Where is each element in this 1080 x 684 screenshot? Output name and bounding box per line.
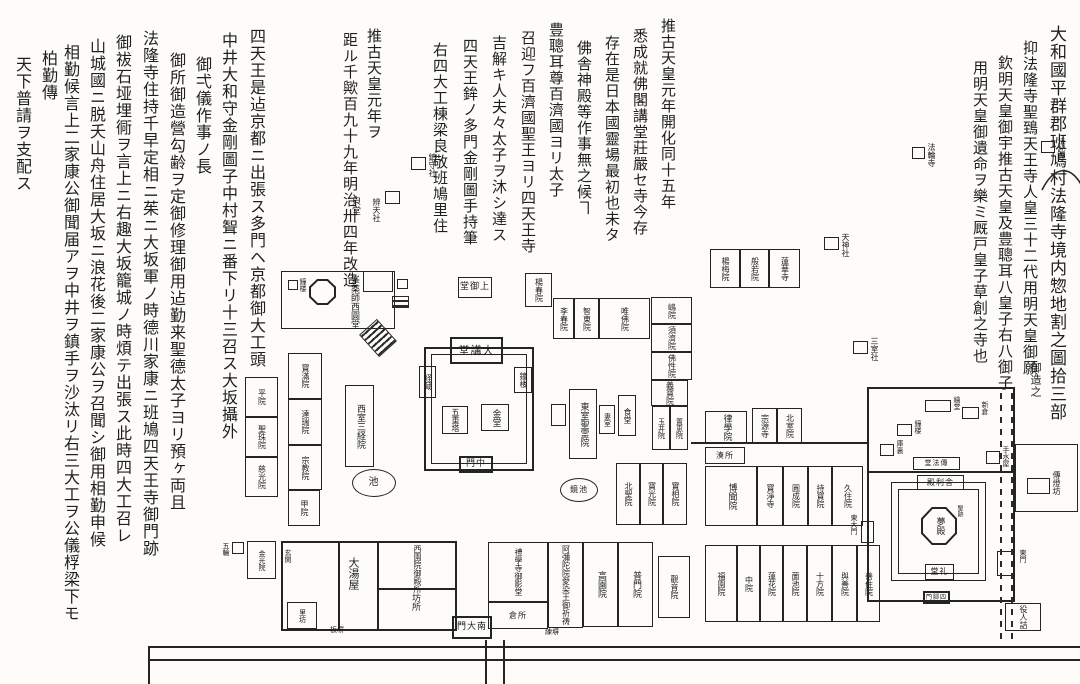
golden-hall: 金堂 (481, 404, 509, 431)
subtemple-label: 宗教院 (301, 456, 309, 480)
left-text-column-9: 天下普請ヲ支配ス (14, 56, 30, 192)
subtemple: 平院 (245, 377, 278, 417)
precinct-wall (691, 442, 868, 444)
pond: 池 (352, 469, 396, 497)
west-belfry-label: 鐘楼 (519, 372, 527, 388)
left-text-column-2: 御弌儀作事ノ長 (194, 56, 210, 175)
tsumamuro-label: 妻室 (604, 413, 611, 427)
left-text-column-4: 法隆寺住持千早定相ニ茱ニ大坂軍ノ時德川家康ニ班鳩四天王寺御門跡 (141, 30, 157, 557)
east-outbuilding (962, 407, 979, 419)
subtemple-label: 唯佛院 (621, 307, 629, 331)
golden-hall-label: 金堂 (491, 409, 500, 427)
middle-gate-label: 門中 (466, 460, 486, 469)
compound-wall (338, 541, 340, 631)
center-text-column-3: 佛舎神殿等作事無之候ヿ (576, 40, 591, 216)
wall-note: 板塀 (330, 627, 344, 634)
left-text-column-0: 四天王是迠京都ニ出張ス多門ヘ京都御大工頭 (248, 28, 264, 368)
right-text-column-2: 欽明天皇御宇推古天皇及豊聰耳八皇子右八御子 (997, 55, 1012, 391)
subtemple-label: 北聖院 (624, 482, 632, 506)
wall-note: 練塀 (545, 629, 559, 636)
shoryoin-hall-label: 東室聖霊院 (579, 402, 588, 447)
east-precinct-wall (867, 471, 1015, 473)
south-road (148, 659, 1080, 661)
right-text-column-4: 御造之 (1030, 362, 1041, 398)
center-text-column-7: 四天王鉾ノ多門金剛圖手持筆 (462, 38, 477, 246)
subtemple-label: 蓮花院 (768, 572, 776, 596)
saiendo-label: 峯薬師西圓堂 (349, 275, 358, 329)
benten-shrine (385, 191, 400, 204)
subtemple-label: 十方院 (816, 572, 824, 596)
saiendo-annex (363, 271, 393, 292)
hokiji-label: 法起寺 (1057, 137, 1065, 161)
east-outbuilding (986, 451, 1000, 464)
subtemple: 楊春院 (525, 273, 552, 307)
cloister-east-gate (551, 404, 566, 426)
subtemple-label: 嶋院 (668, 303, 676, 319)
water-basin-label: 手水屋 (1002, 446, 1009, 467)
subtemple-label: 高園院 (596, 571, 605, 598)
great-lecture-hall: 堂講大 (450, 337, 503, 364)
dentobo (1027, 478, 1050, 494)
upper-hall: 堂御上 (458, 277, 492, 298)
subtemple-label: 楊春院 (535, 278, 543, 302)
subtemple: 智東院 (574, 298, 599, 339)
subtemple: 佛性院 (651, 352, 692, 380)
west-belfry: 鐘楼 (514, 367, 532, 393)
subtemple-label: 湊所 (716, 452, 734, 460)
subtemple: 久住院 (832, 466, 863, 526)
compound-wall (377, 541, 379, 631)
subtemple-label: 持寶院 (816, 484, 824, 508)
horinji-marker (912, 147, 925, 159)
subtemple: 律學院 (705, 411, 747, 444)
left-text-column-8: 柏勤傳 (40, 50, 56, 101)
small-square (232, 542, 244, 554)
south-road (148, 646, 1080, 648)
subtemple-label: 金光院 (258, 550, 265, 571)
subtemple: 義寶院 (651, 380, 688, 406)
mimuro-shrine (853, 341, 868, 354)
subtemple-label: 圓成院 (792, 484, 800, 508)
subtemple: 觀音院 (658, 556, 690, 618)
saionin-label: 西園院御殿所 (413, 545, 421, 593)
tenjin-shrine-label: 天神社 (841, 233, 849, 257)
hokiji-marker (1041, 141, 1055, 153)
subtemple-label: 薗池院 (791, 572, 799, 596)
subtemple: 湊所 (705, 447, 745, 464)
subtemple: 十方院 (807, 545, 832, 622)
subtemple: 高園院 (583, 542, 618, 627)
subtemple-label: 博聞院 (727, 483, 736, 510)
subtemple: 蓮華寺 (769, 249, 800, 288)
teaching-hall-label: 堂法傳 (925, 460, 949, 467)
subtemple-label: 達瑞院 (301, 410, 309, 434)
south-road (148, 646, 150, 684)
subtemple: 宗源寺 (752, 408, 777, 443)
upper-hall-label: 堂御上 (460, 283, 490, 292)
tsumamuro: 妻室 (599, 405, 615, 434)
subtemple: 福園院 (705, 545, 737, 622)
saiendo-belfry (288, 280, 298, 290)
subtemple: 持寶院 (808, 466, 832, 526)
subtemple: 實相院 (663, 463, 687, 525)
subtemple: 與善院 (832, 545, 857, 622)
subtemple: 須濟院 (651, 324, 692, 352)
approach-road (485, 640, 487, 684)
entrance-label: 玄関 (284, 549, 291, 563)
sankyoin-hall-label: 西室三経院 (355, 404, 364, 449)
five-story-pagoda: 五重塔 (442, 406, 468, 434)
right-text-column-1: 抑法隆寺聖鵄天王寺人皇三十二代用明天皇御願 (1022, 40, 1037, 376)
subtemple: 唯佛院 (599, 298, 650, 339)
subtemple-label: 久住院 (844, 484, 852, 508)
left-text-column-5: 御祓石垭埋衕ヲ言上ニ右趣大坂籠城ノ時煩テ出張ス此時四大工召レ (114, 34, 130, 544)
subtemple-label: 智東院 (583, 307, 591, 331)
five-story-pagoda-label: 五重塔 (451, 408, 459, 432)
saiendo-belfry-label: 鐘楼 (299, 278, 306, 292)
east-outbuilding (925, 400, 951, 412)
road-dashed (1000, 393, 1002, 645)
center-text-column-10: 距ル千歟百九十九年明治卅四年改造 (342, 32, 357, 288)
relic-hall-label: 殿利舎 (927, 479, 954, 487)
subtemple: 寶光院 (640, 463, 663, 525)
storehouse: 倉所 (488, 602, 548, 629)
subtemple: 楊梅院 (710, 249, 740, 288)
subtemple: 中院 (737, 545, 760, 622)
satobo-label: 里坊 (299, 609, 306, 623)
subtemple: 阿彌陀院愛染王御祈祷 (548, 542, 583, 628)
subtemple: 薗池院 (783, 545, 807, 622)
subtemple: 寶淨寺 (757, 466, 783, 526)
todaimon-gate (861, 521, 874, 543)
subtemple-label: 福園院 (717, 572, 725, 596)
tenjin-shrine (824, 237, 839, 250)
subtemple-label: 蓮華寺 (781, 257, 789, 281)
subtemple-label: 佛性院 (668, 354, 676, 378)
road-dashed (1011, 393, 1013, 645)
subtemple-label: 阿彌陀院愛染王御祈祷 (562, 545, 570, 625)
worship-hall-label: 堂礼 (931, 568, 949, 576)
subtemple-label: 須濟院 (668, 326, 676, 350)
four-leg-gate: 門脚四 (923, 591, 950, 604)
subtemple: 嶋院 (651, 297, 692, 324)
dentobo-label: 傳燈坊 (1052, 471, 1060, 495)
guard-post-label: 役人詰 (1019, 605, 1027, 629)
teaching-hall: 堂法傳 (913, 457, 960, 470)
mirror-pond: 鏡池 (560, 478, 598, 502)
relic-hall: 殿利舎 (917, 475, 964, 490)
subtemple-label: 義寶院 (666, 381, 674, 405)
subtemple: 蓮花院 (760, 545, 783, 622)
horinji-label: 法輪寺 (927, 143, 935, 167)
subtemple-label: 寶淨寺 (766, 484, 774, 508)
subtemple-label: 平院 (258, 389, 266, 405)
middle-gate: 門中 (459, 456, 493, 473)
satobo: 里坊 (287, 602, 317, 629)
subtemple: 慈光院 (245, 457, 278, 497)
subtemple-label: 律學院 (722, 414, 731, 441)
subtemple-label: 中院 (745, 576, 753, 592)
center-text-column-11: 㒵堂 (350, 196, 359, 216)
sankyoin-hall: 西室三経院 (345, 385, 374, 467)
bosho-label: 坊所 (410, 593, 419, 611)
worship-hall: 堂礼 (925, 564, 954, 580)
subtemple: 聖珠院 (245, 417, 278, 457)
east-gate-label: 東門 (1019, 549, 1026, 563)
center-text-column-2: 存在是日本國靈場最初也未タ (604, 35, 619, 243)
subtemple-label: 甲院 (300, 500, 308, 516)
subtemple: 北聖院 (616, 463, 640, 525)
storehouse-label: 倉所 (509, 612, 527, 620)
subtemple-label: 楊梅院 (721, 257, 729, 281)
center-text-column-9: 推古天皇元年ヲ (366, 28, 381, 140)
center-text-column-4: 豊聰耳尊百濟國ヨリ太子 (548, 22, 563, 198)
center-text-column-1: 悉成就佛閣講堂莊嚴セ寺今存 (632, 28, 647, 236)
subtemple: 北室院 (777, 408, 802, 443)
center-text-column-6: 吉解キ人夫々太子ヲ沐シ達ス (491, 35, 506, 243)
subtemple: 斈春院 (553, 298, 574, 339)
shoryoin-hall: 東室聖霊院 (569, 389, 597, 459)
great-lecture-hall-label: 堂講大 (459, 345, 495, 356)
yumedono-hall-label: 夢殿 (935, 517, 944, 535)
subtemple-label: 普門院 (631, 571, 640, 598)
subtemple: 普門院 (618, 542, 653, 627)
subtemple-label: 宗源寺 (761, 414, 769, 438)
subtemple-label: 斈春院 (560, 307, 568, 331)
kitchen-label: 庫裏 (896, 440, 903, 454)
east-outbuilding (880, 444, 894, 456)
right-text-column-3: 用明天皇御遺命ヲ樂ミ厩戸皇子草創之寺也 (972, 60, 987, 364)
subtemple-label: 實相院 (671, 482, 679, 506)
mimuro-shrine-label: 三室社 (870, 337, 878, 361)
left-text-column-1: 中井大和守金剛圖子中村聟ニ番下リ十三召ス大坂攝外 (220, 32, 236, 440)
subtemple-label: 北室院 (786, 414, 794, 438)
subtemple-label: 與善院 (841, 572, 849, 596)
south-great-gate-label: 門大南 (457, 623, 487, 632)
subtemple: 禮學寺御影堂 (488, 542, 548, 602)
seiseki-note: 聖跡 (956, 505, 962, 517)
subtemple-label: 般若院 (751, 257, 759, 281)
center-text-column-8: 右四大工棟梁良敬班鳩里住 (432, 42, 447, 234)
subtemple: 圓成院 (783, 466, 808, 526)
subtemple-label: 禮學寺御影堂 (514, 548, 522, 596)
center-text-column-0: 推古天皇元年開化同十五年 (660, 18, 675, 210)
yumedono-hall: 夢殿 (921, 507, 957, 545)
mirror-pond-label: 鏡池 (570, 486, 588, 494)
left-text-column-3: 御所御造營勾齢ヲ定御修理御用迠勤来聖德太子ヨリ預ヶ両且 (168, 52, 184, 511)
sutra-repository-label: 経蔵 (424, 374, 432, 390)
todaimon-label: 東大門 (850, 514, 857, 535)
subtemple: 甲院 (288, 490, 320, 526)
scanned-temple-map-page: 大和國平群郡班鳩村法隆寺境内惣地割之圖拾三部抑法隆寺聖鵄天王寺人皇三十二代用明天… (0, 0, 1080, 684)
stone-steps (392, 296, 409, 308)
subtemple: 寶滿院 (288, 353, 322, 399)
center-text-column-5: 召迎フ百濟國聖王ヨリ四天王寺 (520, 30, 535, 254)
left-text-column-7: 相勤候言上二家康公御聞届アヲ中井ヲ鎮手ヲ沙汰リ右三大工ヲ公儀桴梁下モ (62, 44, 78, 622)
subtemple: 達瑞院 (288, 399, 322, 445)
subtemple: 宗教院 (288, 445, 322, 490)
refectory: 食堂 (618, 395, 636, 436)
subtemple: 博聞院 (705, 466, 757, 526)
approach-road (503, 640, 505, 684)
subtemple-label: 寶滿院 (301, 364, 309, 388)
saiendo-round-hall (309, 279, 336, 305)
refectory-label: 食堂 (623, 408, 631, 424)
subtemple: 金光院 (247, 541, 276, 579)
four-leg-gate-label: 門脚四 (926, 595, 947, 601)
pond-label: 池 (369, 478, 380, 488)
sutra-repository: 経蔵 (419, 366, 436, 398)
chinju-shrine (411, 157, 426, 170)
subtemple-label: 寶光院 (648, 482, 656, 506)
gorin-label: 五輪 (222, 542, 229, 556)
right-text-column-0: 大和國平群郡班鳩村法隆寺境内惣地割之圖拾三部 (1047, 25, 1064, 421)
subtemple-label: 玉井院 (658, 418, 665, 439)
small-square (397, 279, 408, 289)
edono-label: 繪堂 (953, 396, 960, 410)
bathhouse-label: 大湯屋 (348, 557, 359, 590)
subtemple: 般若院 (740, 249, 769, 288)
south-great-gate: 門大南 (452, 616, 492, 639)
subtemple-label: 觀音院 (670, 575, 678, 599)
left-text-column-6: 山城國ニ脱夭山舟住居大坂ニ浪花後二家康公ヲ召聞シ御用相勤申候 (88, 38, 104, 548)
subtemple-label: 慈光院 (258, 465, 266, 489)
chinju-shrine-label: 鎮守社 (428, 153, 436, 177)
storehouse-label: 新倉 (981, 401, 988, 415)
east-outbuilding (897, 424, 912, 436)
subtemple: 玉井院 (652, 406, 670, 450)
subtemple-label: 置恵院 (676, 418, 683, 439)
benten-shrine-label: 辨天社 (372, 198, 380, 222)
subtemple-label: 聖珠院 (258, 425, 266, 449)
subtemple: 置恵院 (670, 406, 688, 450)
east-belfry-label: 鐘楼 (914, 420, 921, 434)
